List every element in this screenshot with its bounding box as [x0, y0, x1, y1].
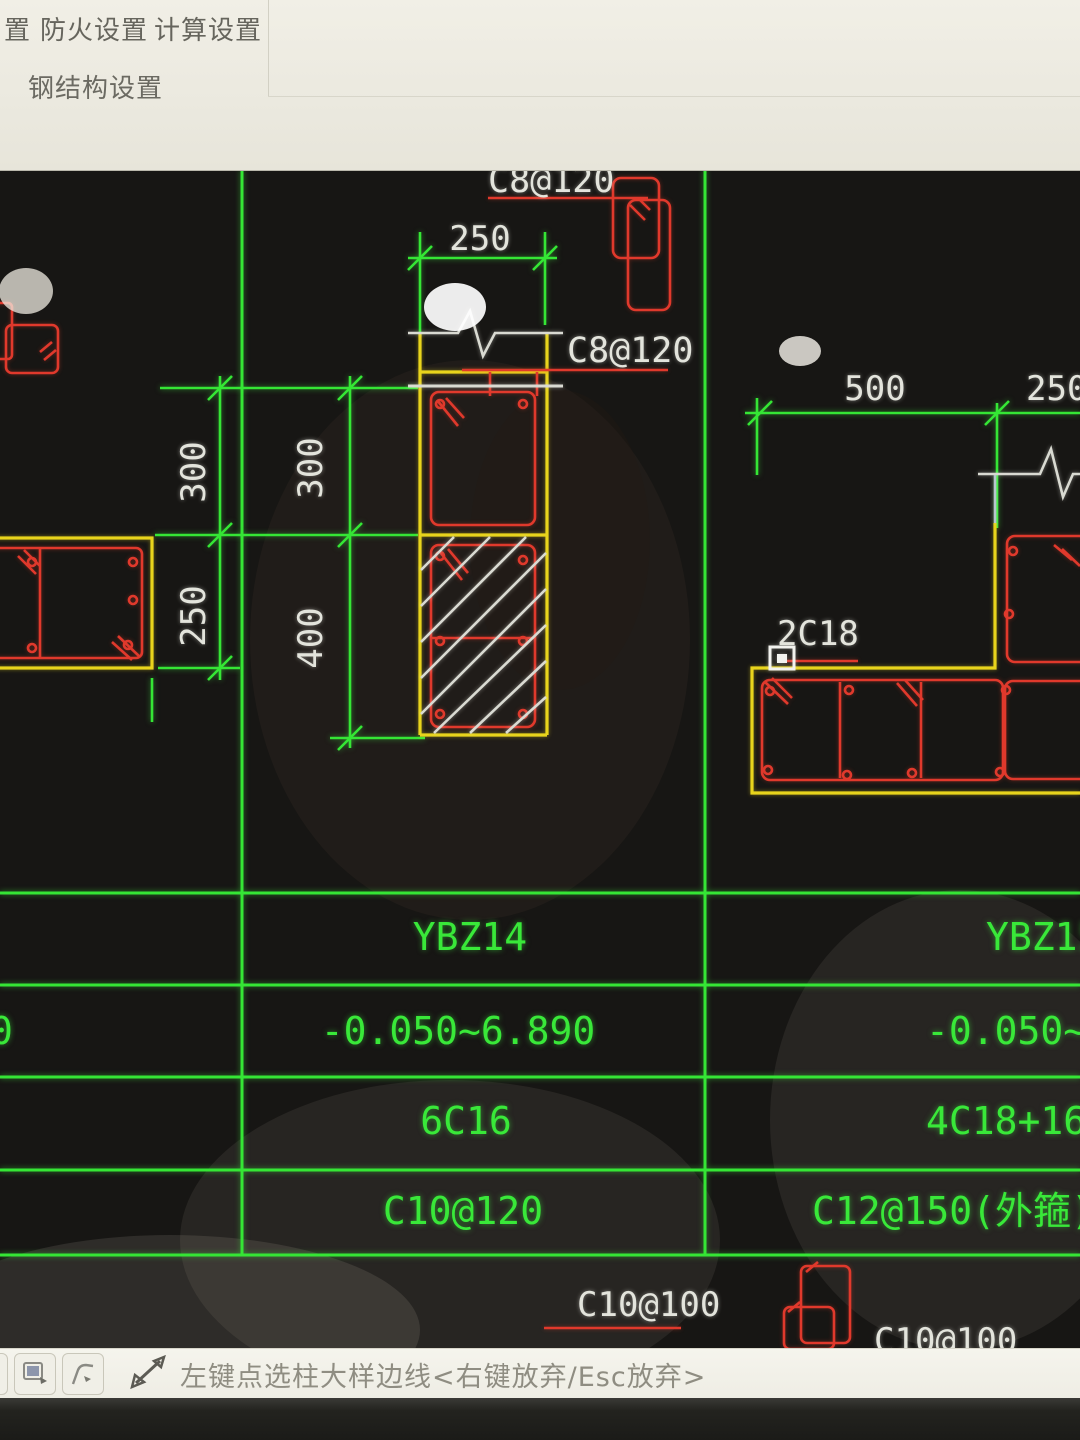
label-dim-500: 500	[844, 369, 905, 409]
menu-item-calc-settings[interactable]: 计算设置	[154, 10, 262, 47]
menu-item-partial[interactable]: 置	[4, 10, 31, 47]
ribbon-menubar: 置 防火设置 计算设置 钢结构设置	[0, 0, 1080, 171]
polyline-tool-button[interactable]	[62, 1353, 104, 1395]
label-dim-300-mid: 300	[291, 437, 331, 498]
cell-elevation-ybz14: -0.050~6.890	[321, 1009, 596, 1053]
status-bar: 左键点选柱大样边线<右键放弃/Esc放弃>	[0, 1348, 1080, 1399]
label-dim-400-mid: 400	[291, 607, 331, 668]
monitor-bezel	[0, 1398, 1080, 1440]
cell-name-ybz15: YBZ15	[986, 915, 1080, 959]
status-hint-text: 左键点选柱大样边线<右键放弃/Esc放弃>	[180, 1355, 706, 1394]
cell-elevation-ybz15: -0.050~6.890	[926, 1009, 1080, 1053]
cell-rebar-ybz14: 6C16	[420, 1099, 512, 1143]
label-dim-250-left: 250	[174, 585, 214, 646]
menu-item-steel-settings[interactable]: 钢结构设置	[28, 68, 163, 105]
cad-canvas[interactable]: C8@120 250 C8@120 300 250 300 400 500 25…	[0, 0, 1080, 1440]
cell-rebar-ybz15: 4C18+16C18	[926, 1099, 1080, 1143]
label-c8-120-mid: C8@120	[567, 331, 693, 371]
cell-stirrup-ybz14: C10@120	[383, 1189, 543, 1233]
view-tool-button[interactable]	[14, 1353, 56, 1395]
screen-copy-icon	[21, 1360, 49, 1388]
menu-divider-horizontal	[268, 96, 1080, 97]
resize-cursor-icon	[128, 1355, 168, 1393]
cell-left-partial: 0	[0, 1009, 13, 1053]
label-dim-250-right: 250	[1026, 369, 1080, 409]
menu-item-fire-settings[interactable]: 防火设置	[40, 10, 148, 47]
label-c10-100-left: C10@100	[577, 1285, 720, 1325]
cell-name-ybz14: YBZ14	[413, 915, 527, 959]
label-2c18: 2C18	[777, 614, 859, 654]
toolbar-button-partial[interactable]	[0, 1353, 8, 1395]
reflection-phone	[470, 390, 650, 690]
cell-stirrup-ybz15: C12@150(外箍)+C10@100	[812, 1189, 1080, 1233]
menu-divider-vertical	[268, 0, 269, 96]
app-window: 置 防火设置 计算设置 钢结构设置	[0, 0, 1080, 1440]
label-dim-300-left: 300	[174, 441, 214, 502]
label-dim-250-top: 250	[449, 219, 510, 259]
polyline-arc-icon	[69, 1360, 97, 1388]
